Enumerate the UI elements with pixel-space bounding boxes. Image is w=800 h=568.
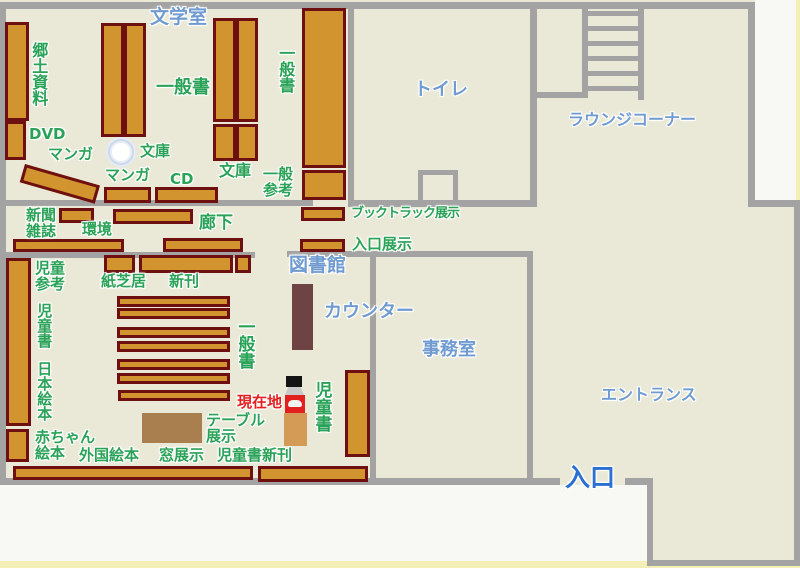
shelf-row-5: [117, 359, 230, 370]
wall-toilet-east: [530, 9, 537, 207]
label-bunko-pillar: 文庫: [140, 143, 170, 159]
label-jidosho-left: 児童書: [36, 303, 52, 348]
wall-right-upper: [748, 2, 755, 207]
wall-south-wing-bottom: [648, 560, 800, 566]
label-table-tenji: テーブル 展示: [206, 412, 265, 444]
shelf-row-7: [118, 390, 230, 401]
label-genzaichi: 現在地: [237, 394, 282, 410]
shelf-row-3: [117, 327, 230, 338]
wall-toilet-west: [348, 9, 354, 207]
shelf-bottom-long-1: [13, 466, 253, 480]
label-cd: CD: [170, 171, 193, 187]
shelf-bottom-long-2: [258, 466, 368, 482]
shelf-ippan-sanko: [302, 170, 346, 200]
label-shinbun-zasshi: 新聞 雑誌: [26, 207, 56, 239]
label-kamishibai: 紙芝居: [101, 273, 146, 289]
shelf-iriguchi-tenji: [300, 239, 345, 252]
shelf-shinkan-2: [235, 255, 251, 273]
label-booktruck-tenji: ブックトラック展示: [351, 207, 459, 221]
wall-office-west: [370, 251, 376, 485]
room-label-office: 事務室: [422, 340, 476, 359]
label-nihon-ehon: 日本絵本: [36, 361, 52, 421]
label-iriguchi-tenji: 入口展示: [352, 236, 412, 252]
label-jidosho-shinkan: 児童書新刊: [217, 447, 292, 463]
shelf-bunko-3: [213, 124, 236, 161]
shelf-manga-h: [104, 187, 151, 203]
shelf-bunko-1: [213, 18, 236, 122]
shelf-left-tall: [6, 258, 31, 426]
shelf-kankyo: [113, 209, 193, 224]
library-floor-map: 文学室 トイレ ラウンジコーナー 図書館 カウンター 事務室 エントランス 入口…: [0, 0, 800, 568]
room-label-bungaku-shitsu: 文学室: [150, 7, 207, 28]
shelf-ippansho-1: [101, 23, 124, 137]
shelf-row-2: [117, 308, 230, 319]
shelf-jidosho-vertical: [345, 370, 370, 457]
room-label-toshokan: 図書館: [289, 255, 346, 276]
label-mado-tenji: 窓展示: [159, 447, 204, 463]
label-kyodo-shiryo: 郷土資料: [30, 42, 47, 106]
shelf-cd: [155, 187, 218, 203]
wall-notch: [748, 200, 800, 207]
label-dvd: DVD: [29, 126, 66, 142]
counter-desk: [292, 284, 313, 350]
shelf-ippansho-2: [124, 23, 146, 137]
label-jido-sanko: 児童 参考: [35, 260, 65, 292]
room-label-entrance: 入口: [565, 464, 615, 491]
label-ippansho-child: 一般書: [235, 318, 253, 369]
label-jidosho-right: 児童書: [312, 381, 330, 432]
shelf-ippansho-wall: [302, 8, 346, 168]
wall-office-east: [527, 251, 533, 485]
shelf-row-6: [117, 373, 230, 384]
label-ippansho-wall: 一般書: [277, 45, 294, 93]
shelf-corridor-long-2: [163, 238, 243, 252]
display-table: [142, 413, 202, 443]
label-gaikoku-ehon: 外国絵本: [79, 447, 139, 463]
label-kankyo: 環境: [82, 221, 112, 237]
shelf-kyodo-shiryo: [5, 22, 29, 121]
wall-top: [0, 2, 755, 9]
label-rouka: 廊下: [199, 214, 233, 232]
shelf-shinkan: [139, 255, 233, 273]
label-ippan-sanko: 一般 参考: [263, 166, 293, 198]
paper-edge-bottom: [0, 561, 650, 568]
shelf-left-small: [6, 429, 29, 462]
toilet-alcove: [418, 170, 458, 205]
label-bunko-2: 文庫: [219, 162, 251, 179]
shelf-kamishibai: [104, 255, 135, 273]
room-label-toilet: トイレ: [414, 80, 468, 99]
shelf-corridor-long-1: [13, 239, 124, 252]
room-label-entrance-hall: エントランス: [601, 386, 697, 403]
wall-far-right: [794, 200, 800, 566]
room-label-lounge-corner: ラウンジコーナー: [568, 111, 696, 128]
shelf-booktruck: [301, 207, 345, 221]
shelf-dvd: [5, 121, 26, 160]
label-shinkan: 新刊: [169, 273, 199, 289]
shelf-bunko-2: [236, 18, 258, 122]
shelf-row-4: [117, 341, 230, 352]
shelf-row-1: [117, 296, 230, 307]
floor-east-wing: [748, 200, 800, 566]
label-manga-2: マンガ: [105, 167, 150, 183]
shelf-bunko-4: [236, 124, 258, 161]
pillar-icon: [110, 141, 132, 163]
floor-south-wing: [648, 478, 755, 566]
label-manga-1: マンガ: [48, 146, 93, 162]
room-label-counter: カウンター: [324, 302, 414, 321]
wall-south-wing-left: [647, 478, 653, 566]
label-ippansho-main: 一般書: [156, 78, 210, 97]
paper-edge-right: [796, 0, 800, 200]
